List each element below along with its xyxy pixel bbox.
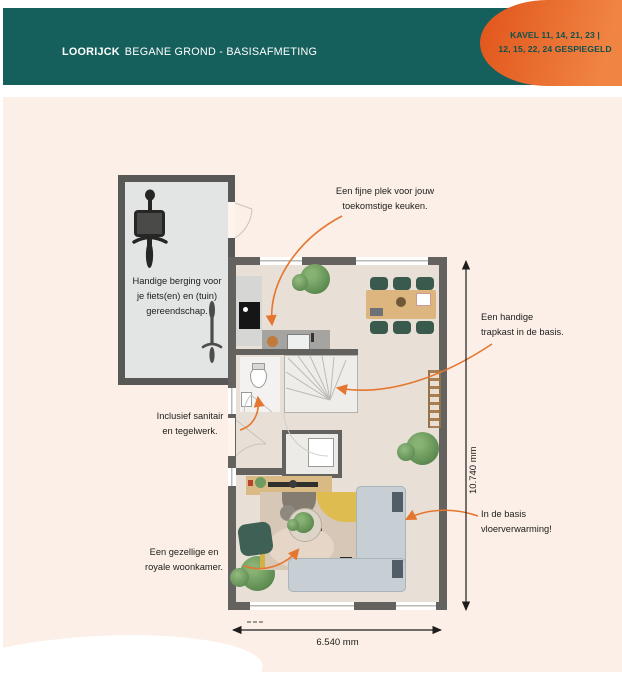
sanitary-note-line2: en tegelwerk. [140,424,240,439]
decorative-white-blob [3,627,265,672]
sofa-seat [288,558,406,592]
storage-note-line3: gereendschap. [122,304,232,319]
stair-note: Een handige trapkast in de basis. [481,310,601,340]
storage-note-line1: Handige berging voor [122,274,232,289]
sanitary-note: Inclusief sanitair en tegelwerk. [140,409,240,439]
washbasin-icon [241,392,252,407]
staircase [284,355,358,413]
storage-door-opening [228,202,235,238]
brochure-page: LOORIJCKBEGANE GROND - BASISAFMETING KAV… [0,0,622,678]
sofa-cushion [392,560,403,578]
kitchen-note-line2: toekomstige keuken. [305,199,465,214]
dining-chair [393,277,411,290]
page-subtitle: BEGANE GROND - BASISAFMETING [125,46,317,58]
laptop-icon [370,308,383,316]
window-top-right [356,257,428,265]
storage-note-line2: je fiets(en) en (tuin) [122,289,232,304]
window-top-left [260,257,302,265]
decor-item [248,480,253,486]
tv-stand-icon [289,480,297,488]
window-bottom-right [396,602,436,610]
living-note-line1: Een gezellige en [128,545,240,560]
stair-closet [282,430,342,478]
stair-note-line2: trapkast in de basis. [481,325,601,340]
heating-note: In de basis vloerverwarming! [481,507,601,537]
kavel-line-1: KAVEL 11, 14, 21, 23 | [494,29,616,43]
dining-chair [370,321,388,334]
sanitary-note-line1: Inclusief sanitair [140,409,240,424]
plant-icon [255,477,266,488]
brand-name: LOORIJCK [62,46,120,58]
width-dimension-label: 6.540 mm [280,637,395,648]
living-note-line2: royale woonkamer. [128,560,240,575]
kavel-badge-text: KAVEL 11, 14, 21, 23 | 12, 15, 22, 24 GE… [494,29,616,56]
dining-chair [370,277,388,290]
plant-icon [406,432,439,465]
kavel-line-2: 12, 15, 22, 24 GESPIEGELD [494,43,616,57]
sofa-cushion [392,492,403,512]
living-note: Een gezellige en royale woonkamer. [128,545,240,575]
plant-icon [300,264,330,294]
closet-door [308,438,334,467]
cooktop-icon [239,302,260,329]
faucet-icon [311,333,314,342]
kavel-badge: KAVEL 11, 14, 21, 23 | 12, 15, 22, 24 GE… [480,0,622,86]
height-dimension-label: 10.740 mm [468,410,479,494]
kitchen-note: Een fijne plek voor jouw toekomstige keu… [305,184,465,214]
bicycle-icon [126,188,172,270]
window-left-living [228,468,236,486]
radiator-icon [428,370,441,428]
dining-chair [416,277,434,290]
plant-icon [293,512,314,533]
armchair [237,521,274,557]
bowl-icon [267,336,278,347]
table-bowl-icon [396,297,406,307]
storage-note: Handige berging voor je fiets(en) en (tu… [122,274,232,319]
threshold-marks [247,621,263,623]
window-bottom-left [250,602,354,610]
heating-note-line2: vloerverwarming! [481,522,601,537]
placemat-icon [416,293,431,306]
dining-chair [393,321,411,334]
stair-note-line1: Een handige [481,310,601,325]
heating-note-line1: In de basis [481,507,601,522]
dining-chair [416,321,434,334]
kitchen-note-line1: Een fijne plek voor jouw [305,184,465,199]
dining-table [366,290,436,319]
page-title: LOORIJCKBEGANE GROND - BASISAFMETING [62,46,317,58]
